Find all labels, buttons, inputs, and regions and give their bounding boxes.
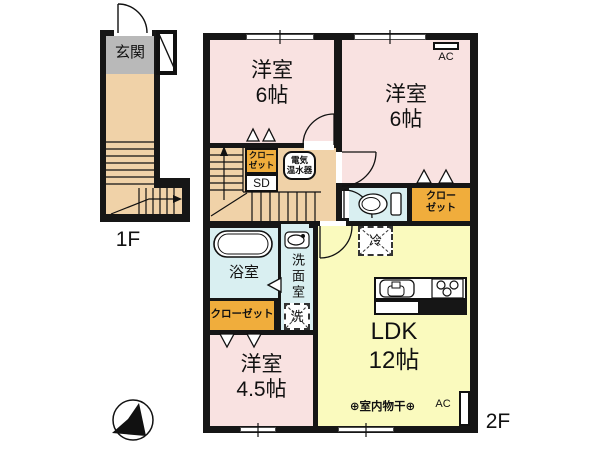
north-compass-icon (112, 400, 153, 440)
2f-stair-arrow (220, 146, 228, 156)
window-ticks (258, 30, 390, 437)
toilet-icon (359, 193, 401, 215)
entry-door-arc (118, 4, 175, 70)
washbasin-icon (285, 232, 309, 248)
bathtub-icon (214, 231, 272, 257)
stove-icon (432, 279, 463, 298)
1f-stair-arrow (173, 195, 182, 203)
kitchen-sink-icon (380, 280, 414, 297)
1f-stairs (106, 142, 174, 214)
plan-linework (0, 0, 600, 450)
door-arcs (303, 114, 376, 258)
floor-plan: 玄関 1F 洋室6帖 洋室6帖 洋室4.5帖 LDK12帖 浴室 洗面室 洗 冷… (0, 0, 600, 450)
2f-stairs (210, 148, 321, 221)
